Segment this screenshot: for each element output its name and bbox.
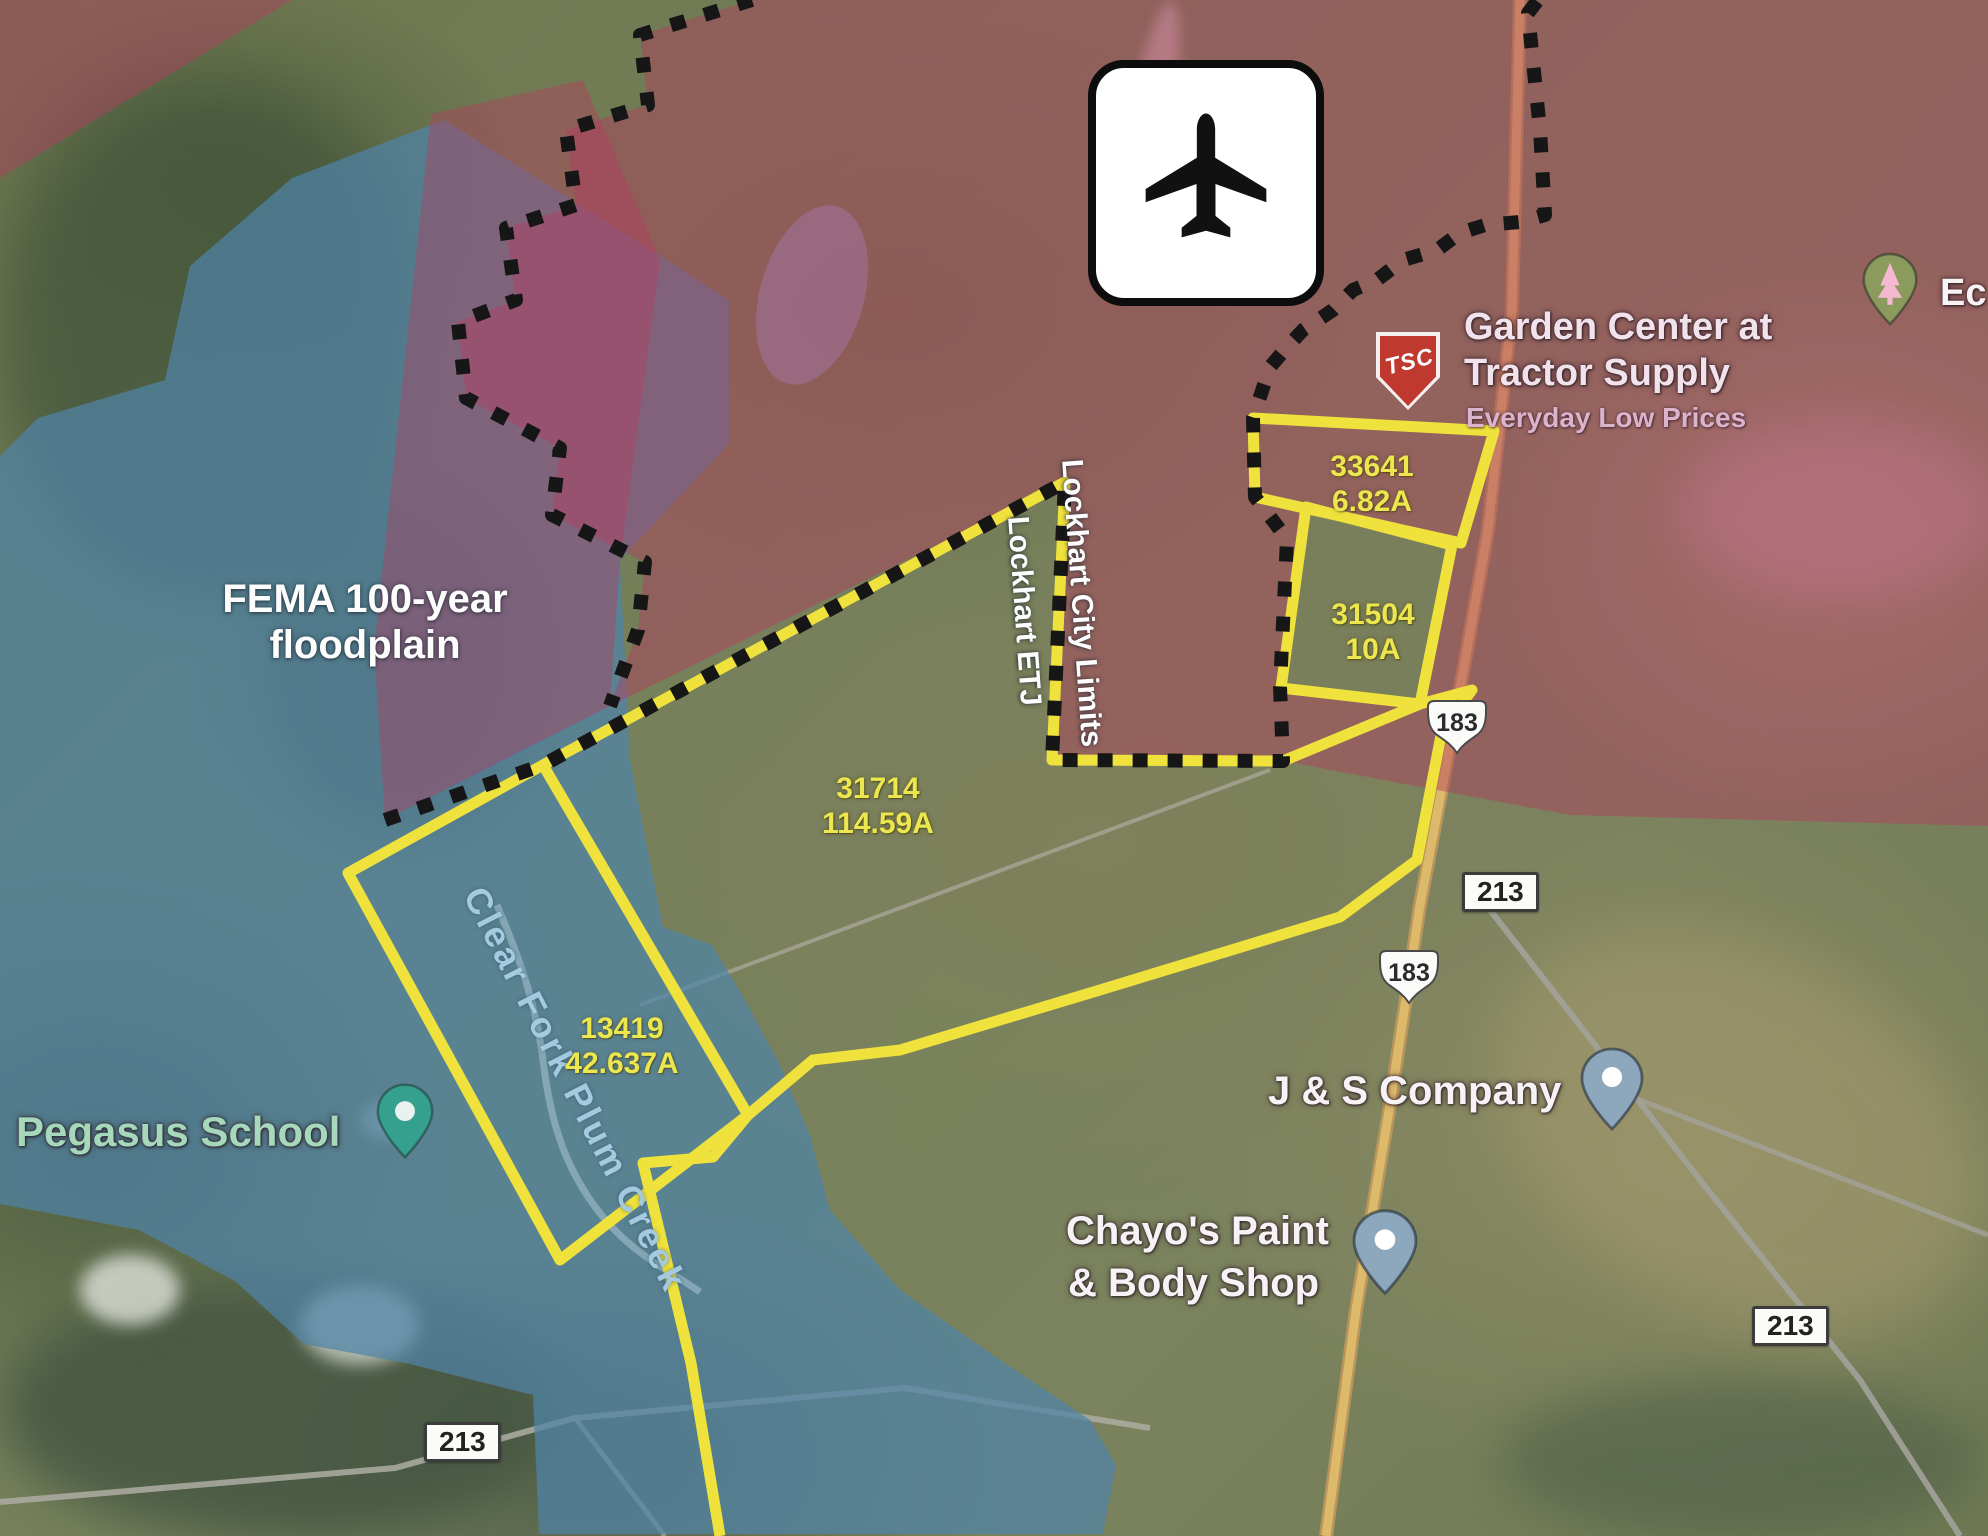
sr-213-sign-east: 213 <box>1462 872 1539 912</box>
parcel-id: 31504 <box>1331 598 1414 633</box>
js-company-pin[interactable] <box>1580 1038 1644 1145</box>
floodplain-label-line2: floodplain <box>165 622 565 668</box>
route-number: 183 <box>1424 709 1490 738</box>
parcel-acres: 42.637A <box>565 1047 678 1082</box>
pin-body <box>1354 1211 1416 1294</box>
floodplain-label-line1: FEMA 100-year <box>165 576 565 622</box>
pegasus-school-pin[interactable] <box>376 1082 434 1165</box>
sr-213-sign-southwest: 213 <box>424 1422 501 1462</box>
pin-dot <box>395 1101 415 1121</box>
map-overlay-layer <box>0 0 1988 1536</box>
poi-chayos-line2[interactable]: & Body Shop <box>1068 1260 1319 1306</box>
parcel-id: 13419 <box>565 1012 678 1047</box>
parcel-id: 33641 <box>1330 450 1413 485</box>
map-canvas: TSC Garden Center at Tractor Supply Ever… <box>0 0 1988 1536</box>
poi-garden-center-line2[interactable]: Tractor Supply <box>1464 352 1730 396</box>
pin-dot <box>1602 1067 1622 1087</box>
parcel-acres: 6.82A <box>1330 485 1413 520</box>
airplane-icon <box>1127 104 1285 262</box>
parcel-id: 31714 <box>822 772 934 807</box>
parcel-label-13419: 13419 42.637A <box>565 1012 678 1081</box>
route-number: 183 <box>1376 959 1442 988</box>
pin-body <box>1582 1049 1642 1129</box>
parcel-label-33641: 33641 6.82A <box>1330 450 1413 519</box>
pin-dot <box>1375 1229 1396 1250</box>
poi-garden-center-line1[interactable]: Garden Center at <box>1464 306 1772 350</box>
airport-marker[interactable] <box>1088 60 1324 306</box>
poi-js-company[interactable]: J & S Company <box>1268 1068 1561 1114</box>
parcel-acres: 10A <box>1331 633 1414 668</box>
us-183-shield-south: 183 <box>1376 948 1442 1006</box>
poi-chayos-line1[interactable]: Chayo's Paint <box>1066 1208 1329 1254</box>
poi-pegasus-school[interactable]: Pegasus School <box>16 1108 340 1156</box>
tree-park-pin[interactable] <box>1862 252 1918 331</box>
parcel-label-31504: 31504 10A <box>1331 598 1414 667</box>
road-213-east <box>1473 888 1960 1536</box>
city-zone-overlay-corner <box>0 0 292 178</box>
poi-edge-cutoff[interactable]: Ec <box>1940 272 1986 316</box>
sr-213-sign-southeast: 213 <box>1752 1306 1829 1346</box>
poi-garden-center-tagline: Everyday Low Prices <box>1466 402 1746 434</box>
parcel-acres: 114.59A <box>822 807 934 842</box>
us-183-shield-north: 183 <box>1424 698 1490 756</box>
parcel-label-31714: 31714 114.59A <box>822 772 934 841</box>
chayos-pin[interactable] <box>1352 1200 1418 1309</box>
